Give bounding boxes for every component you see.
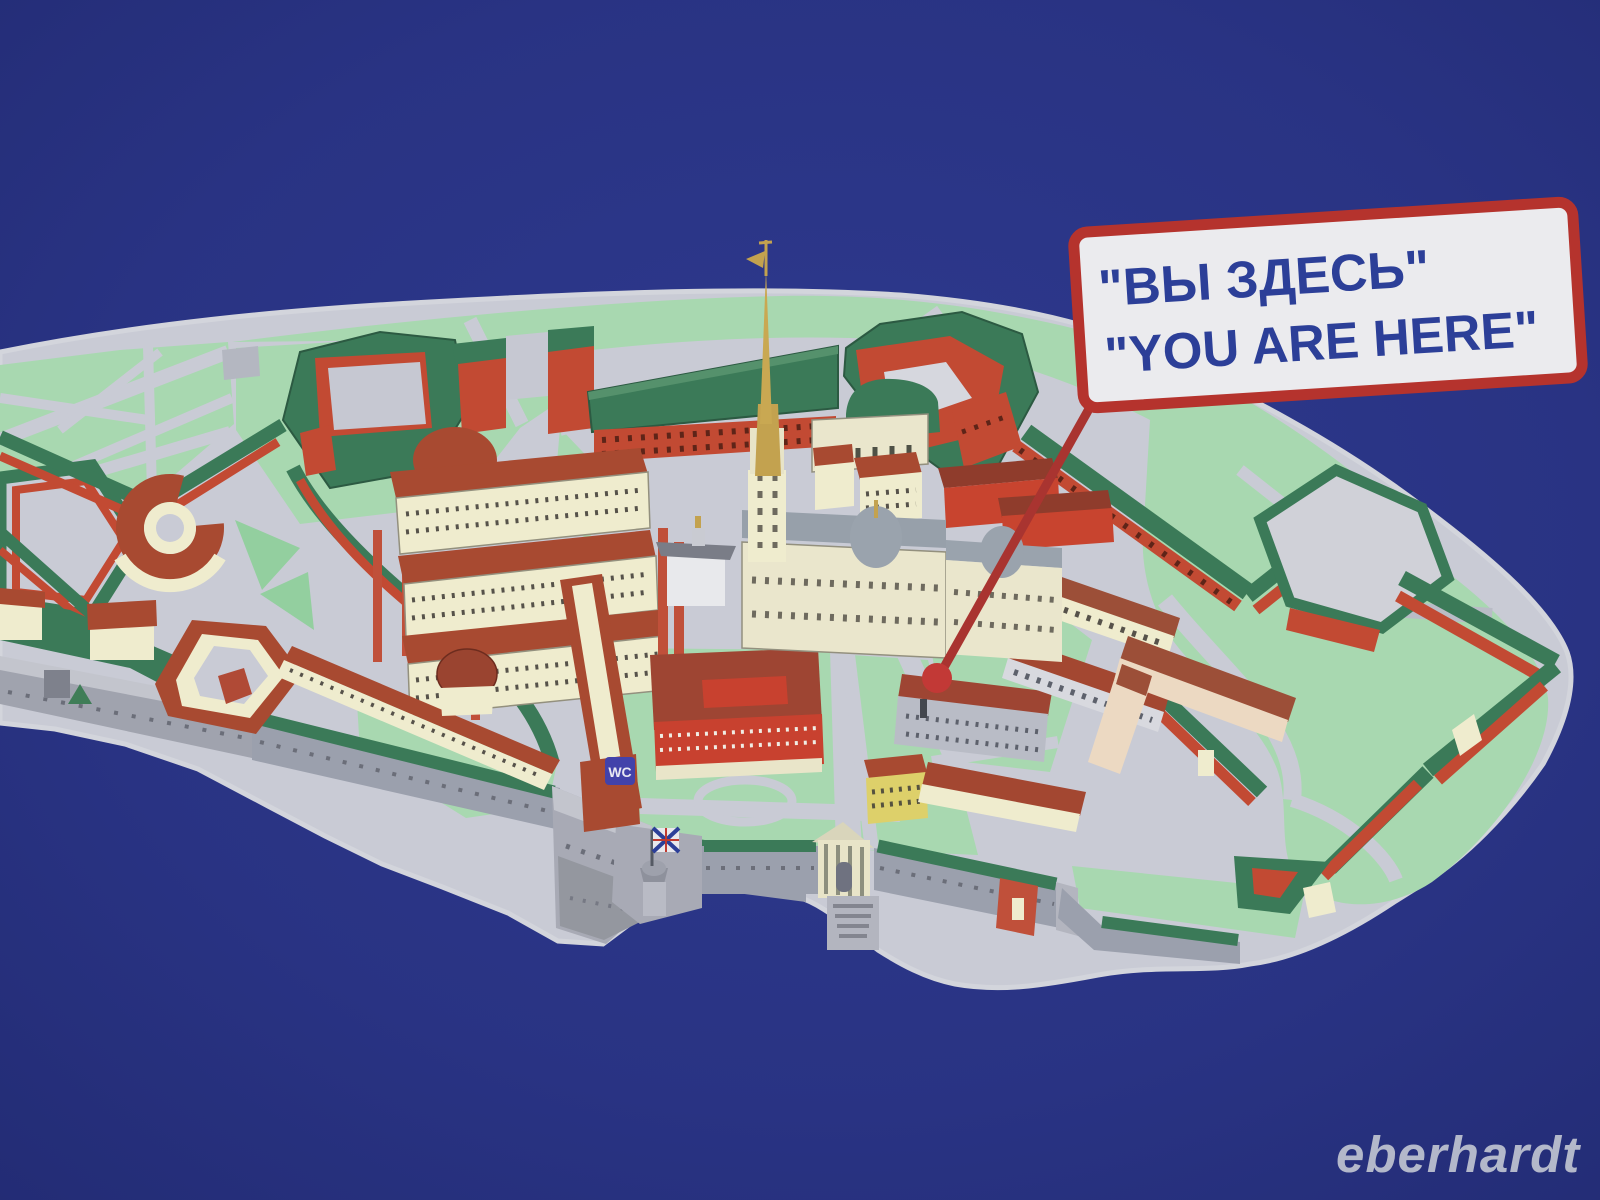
svg-text:eberhardt: eberhardt [1336,1126,1581,1183]
svg-text:WC: WC [608,764,631,780]
